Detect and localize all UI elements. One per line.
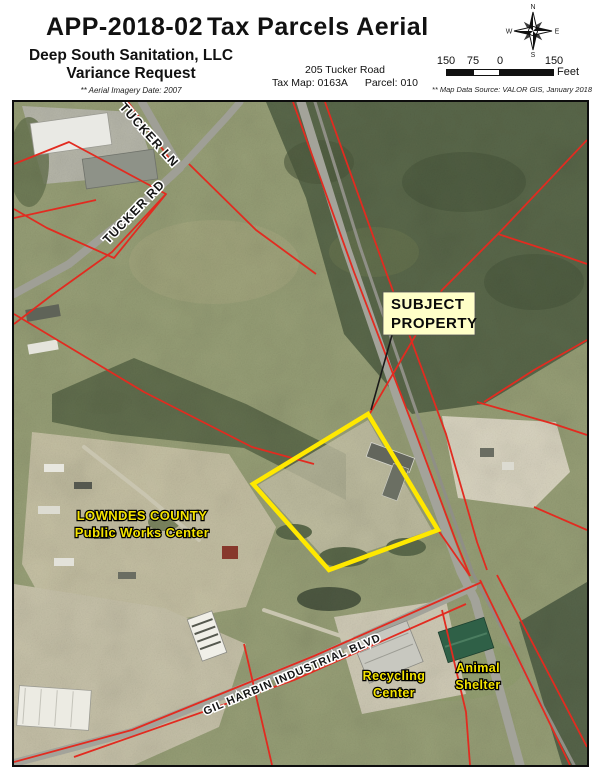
parcel-label: Parcel: 010 — [365, 77, 418, 89]
map-document-page: APP-2018-02 Tax Parcels Aerial Deep Sout… — [0, 0, 600, 777]
compass-west-label: W — [506, 29, 513, 36]
page-title: Tax Parcels Aerial — [207, 13, 429, 42]
poi-label-recycling-center: Center — [373, 686, 415, 700]
compass-east-label: E — [555, 29, 560, 36]
poi-label-shelter: Shelter — [455, 678, 500, 692]
applicant-name: Deep South Sanitation, LLC — [18, 47, 244, 65]
scale-bar-segment — [500, 69, 554, 76]
scale-tick-label: 75 — [467, 55, 479, 67]
callout-line1: SUBJECT — [391, 296, 465, 313]
map-source-note: ** Map Data Source: VALOR GIS, January 2… — [432, 85, 592, 94]
poi-label-lowndes-county: LOWNDES COUNTY — [77, 508, 208, 523]
warehouse-building — [17, 686, 92, 731]
scale-unit-label: Feet — [557, 66, 579, 78]
poi-label-public-works: Public Works Center — [75, 525, 210, 540]
poi-label-animal: Animal — [456, 661, 500, 675]
map-frame: SUBJECT PROPERTY TUCKER LN TUCKER RD GIL… — [12, 100, 589, 767]
truck — [118, 572, 136, 579]
compass-north-label: N — [530, 4, 535, 11]
aerial-map: SUBJECT PROPERTY TUCKER LN TUCKER RD GIL… — [14, 102, 587, 765]
structure — [480, 448, 494, 457]
tax-map-label: Tax Map: 0163A — [272, 77, 348, 89]
subject-property-callout: SUBJECT PROPERTY — [383, 292, 478, 335]
truck — [54, 558, 74, 566]
compass-south-label: S — [531, 52, 536, 58]
imagery-date-note: ** Aerial Imagery Date: 2007 — [18, 86, 244, 95]
truck — [44, 464, 64, 472]
applicant-block: Deep South Sanitation, LLC Variance Requ… — [18, 47, 244, 95]
site-address: 205 Tucker Road — [250, 64, 440, 77]
scale-tick-label: 150 — [437, 55, 455, 67]
compass-rose-icon: N E S W — [505, 2, 561, 58]
site-address-block: 205 Tucker Road Tax Map: 0163A Parcel: 0… — [250, 64, 440, 90]
truck — [38, 506, 60, 514]
scale-tick-label: 0 — [497, 55, 503, 67]
poi-label-recycling: Recycling — [363, 669, 426, 683]
application-number: APP-2018-02 — [46, 13, 203, 42]
callout-line2: PROPERTY — [391, 315, 478, 332]
request-type: Variance Request — [18, 65, 244, 83]
scale-bar — [446, 69, 554, 76]
structure — [502, 462, 514, 470]
red-shed — [222, 546, 238, 559]
scale-bar-segment — [473, 69, 500, 76]
scale-bar-segment — [446, 69, 473, 76]
truck — [74, 482, 92, 489]
